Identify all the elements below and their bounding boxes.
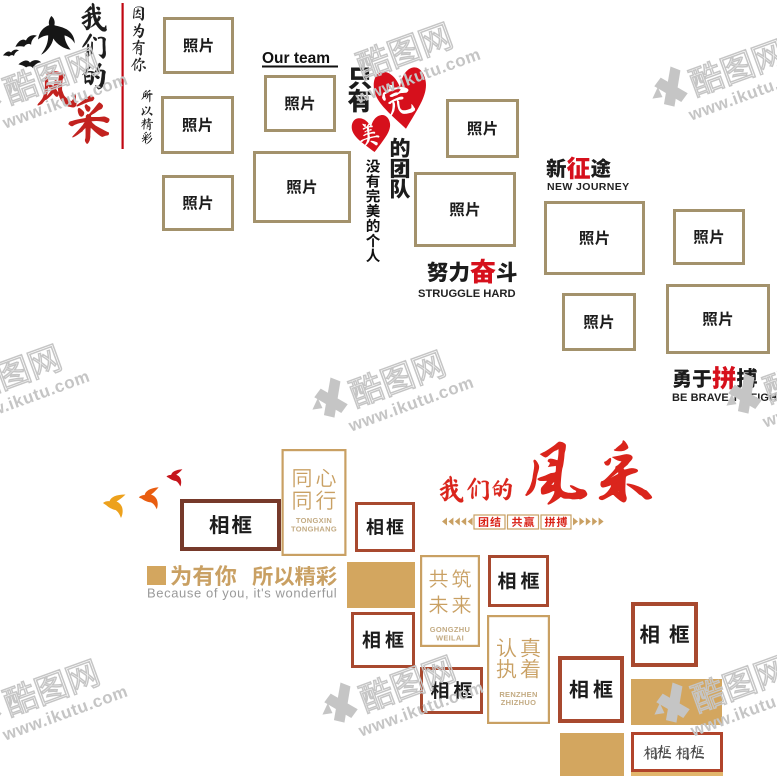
svg-text:STRUGGLE HARD: STRUGGLE HARD [418,288,516,300]
svg-text:Our team: Our team [262,50,330,67]
svg-text:WEILAI: WEILAI [436,634,464,643]
svg-text:Because of you, it's wonderful: Because of you, it's wonderful [147,586,337,601]
svg-text:TONGHANG: TONGHANG [291,525,337,534]
svg-text:BE BRAVE TO FIGHT: BE BRAVE TO FIGHT [672,392,777,404]
svg-text:ZHIZHUO: ZHIZHUO [501,698,536,707]
svg-text:NEW JOURNEY: NEW JOURNEY [547,181,630,193]
